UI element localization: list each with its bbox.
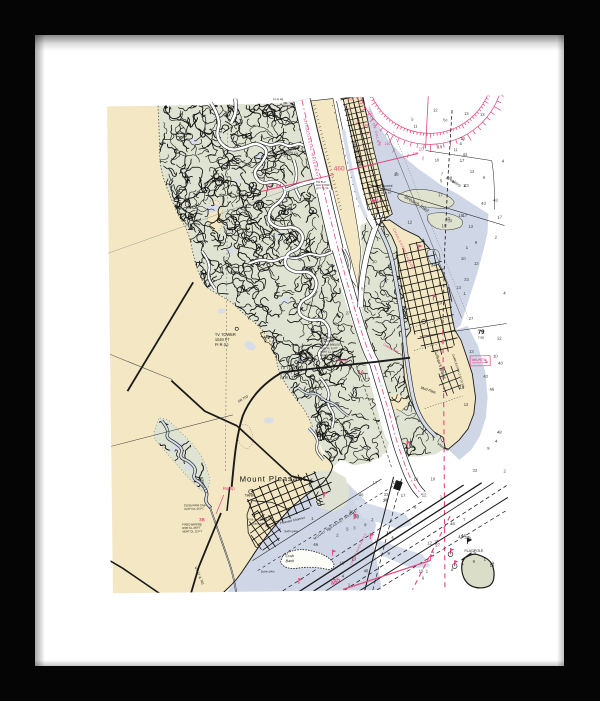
svg-text:Subm piling: Subm piling — [252, 521, 267, 525]
svg-text:10: 10 — [419, 146, 425, 151]
svg-text:46: 46 — [313, 542, 318, 547]
svg-text:12: 12 — [422, 492, 427, 497]
svg-text:15: 15 — [441, 223, 446, 228]
svg-text:33: 33 — [409, 289, 414, 294]
svg-text:Bank: Bank — [286, 559, 296, 563]
svg-text:AUTH CL 85 FT: AUTH CL 85 FT — [320, 357, 340, 361]
svg-text:48: 48 — [497, 430, 502, 435]
svg-text:15: 15 — [419, 569, 424, 574]
svg-text:15: 15 — [437, 144, 442, 149]
svg-text:13: 13 — [456, 285, 461, 290]
svg-text:Marsh: Marsh — [264, 334, 276, 339]
svg-text:VERT CL 12 FT: VERT CL 12 FT — [182, 529, 202, 533]
svg-text:St. M: St. M — [266, 183, 282, 190]
svg-text:10: 10 — [431, 476, 436, 481]
svg-text:13: 13 — [352, 556, 357, 561]
svg-text:10: 10 — [493, 354, 498, 359]
svg-text:17: 17 — [497, 215, 502, 220]
svg-text:12: 12 — [407, 220, 412, 225]
svg-text:VERT CL 0 FT: VERT CL 0 FT — [373, 191, 391, 195]
svg-text:10: 10 — [414, 477, 419, 482]
svg-text:12: 12 — [427, 540, 432, 545]
svg-text:12: 12 — [393, 480, 398, 485]
svg-text:FI R (L): FI R (L) — [215, 342, 229, 347]
svg-text:AUTH CL 65 FT: AUTH CL 65 FT — [184, 507, 204, 511]
svg-text:33: 33 — [384, 492, 389, 497]
svg-text:17: 17 — [462, 213, 467, 218]
svg-text:43: 43 — [493, 198, 498, 203]
svg-text:15: 15 — [340, 560, 345, 565]
svg-text:230: 230 — [362, 123, 368, 127]
svg-text:BEN SAWYER: BEN SAWYER — [320, 336, 338, 340]
svg-text:17: 17 — [373, 480, 378, 485]
svg-text:210: 210 — [385, 142, 391, 146]
svg-text:17: 17 — [401, 493, 406, 498]
svg-text:15: 15 — [459, 385, 464, 390]
svg-text:3M "15": 3M "15" — [283, 101, 294, 105]
svg-text:43: 43 — [463, 152, 468, 157]
svg-text:460: 460 — [334, 165, 345, 172]
svg-text:27: 27 — [431, 262, 436, 267]
svg-text:46: 46 — [450, 521, 455, 526]
svg-text:250: 250 — [347, 97, 353, 101]
svg-text:33: 33 — [472, 468, 477, 473]
svg-text:13: 13 — [464, 402, 469, 407]
svg-text:7 60: 7 60 — [478, 336, 484, 340]
svg-text:FI R LT: FI R LT — [280, 375, 294, 380]
svg-text:46: 46 — [489, 387, 494, 392]
svg-text:10: 10 — [461, 256, 466, 261]
svg-text:1A: 1A — [358, 369, 365, 374]
svg-text:43: 43 — [458, 534, 463, 539]
svg-text:13: 13 — [474, 261, 479, 266]
svg-text:43: 43 — [498, 361, 503, 366]
svg-text:27: 27 — [346, 310, 351, 315]
svg-text:15: 15 — [458, 213, 463, 218]
svg-text:10: 10 — [372, 259, 377, 264]
svg-text:▶1A: ▶1A — [371, 198, 383, 204]
svg-text:12: 12 — [497, 336, 502, 341]
svg-text:Crab: Crab — [285, 554, 293, 558]
svg-text:27: 27 — [383, 498, 388, 503]
svg-text:27: 27 — [469, 316, 474, 321]
svg-text:10: 10 — [437, 300, 442, 305]
svg-text:12: 12 — [468, 224, 473, 229]
svg-text:17: 17 — [438, 192, 443, 197]
svg-text:Mount Pleasant: Mount Pleasant — [240, 474, 307, 484]
svg-text:Ramp: Ramp — [223, 486, 236, 491]
svg-text:12: 12 — [377, 269, 382, 274]
svg-text:Subm piles: Subm piles — [284, 529, 298, 533]
svg-text:Subm piles: Subm piles — [261, 569, 275, 573]
svg-text:43: 43 — [481, 201, 486, 206]
svg-text:46: 46 — [359, 492, 364, 497]
svg-text:5c: 5c — [443, 117, 447, 122]
svg-text:33: 33 — [464, 277, 469, 282]
svg-text:17: 17 — [460, 158, 465, 163]
svg-text:33: 33 — [447, 218, 452, 223]
svg-text:43: 43 — [483, 374, 488, 379]
svg-text:TANK: TANK — [245, 494, 255, 498]
svg-text:LGT TL/TE: LGT TL/TE — [316, 186, 329, 190]
svg-text:48: 48 — [364, 568, 369, 573]
svg-text:13: 13 — [469, 349, 474, 354]
